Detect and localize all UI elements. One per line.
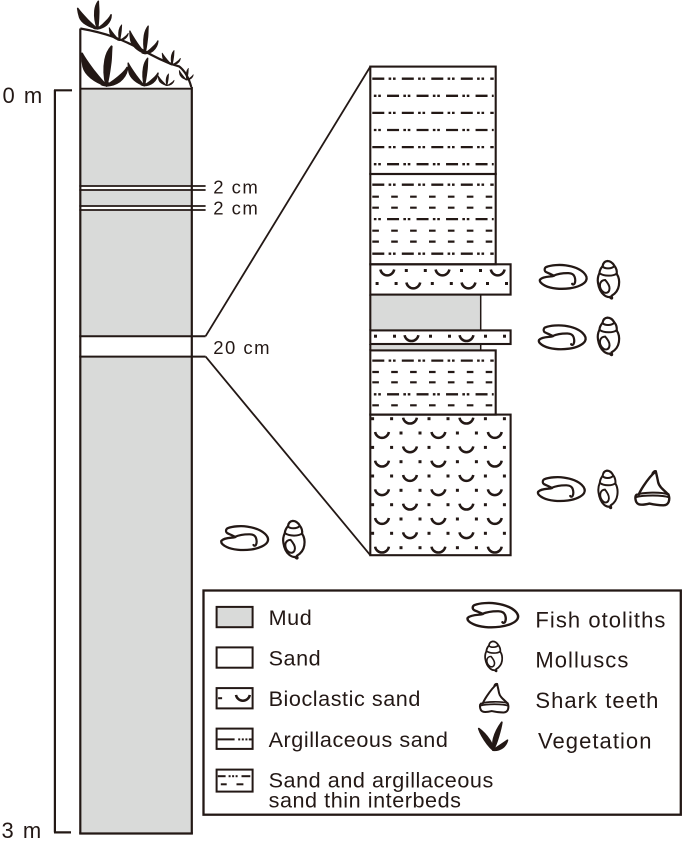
svg-text:Mud: Mud: [269, 605, 313, 630]
svg-text:Fish otoliths: Fish otoliths: [535, 607, 666, 632]
svg-text:Bioclastic sand: Bioclastic sand: [269, 686, 421, 711]
svg-text:Shark teeth: Shark teeth: [535, 688, 659, 713]
svg-text:sand thin interbeds: sand thin interbeds: [269, 788, 462, 813]
svg-text:Argillaceous sand: Argillaceous sand: [269, 727, 449, 752]
svg-text:2 cm: 2 cm: [213, 198, 259, 219]
svg-text:20 cm: 20 cm: [213, 337, 271, 358]
svg-text:0 m: 0 m: [3, 83, 44, 108]
svg-text:Molluscs: Molluscs: [535, 648, 629, 673]
svg-text:Sand: Sand: [269, 646, 322, 671]
svg-text:Vegetation: Vegetation: [538, 728, 652, 753]
svg-text:3 m: 3 m: [2, 818, 43, 842]
svg-text:2 cm: 2 cm: [213, 177, 259, 198]
